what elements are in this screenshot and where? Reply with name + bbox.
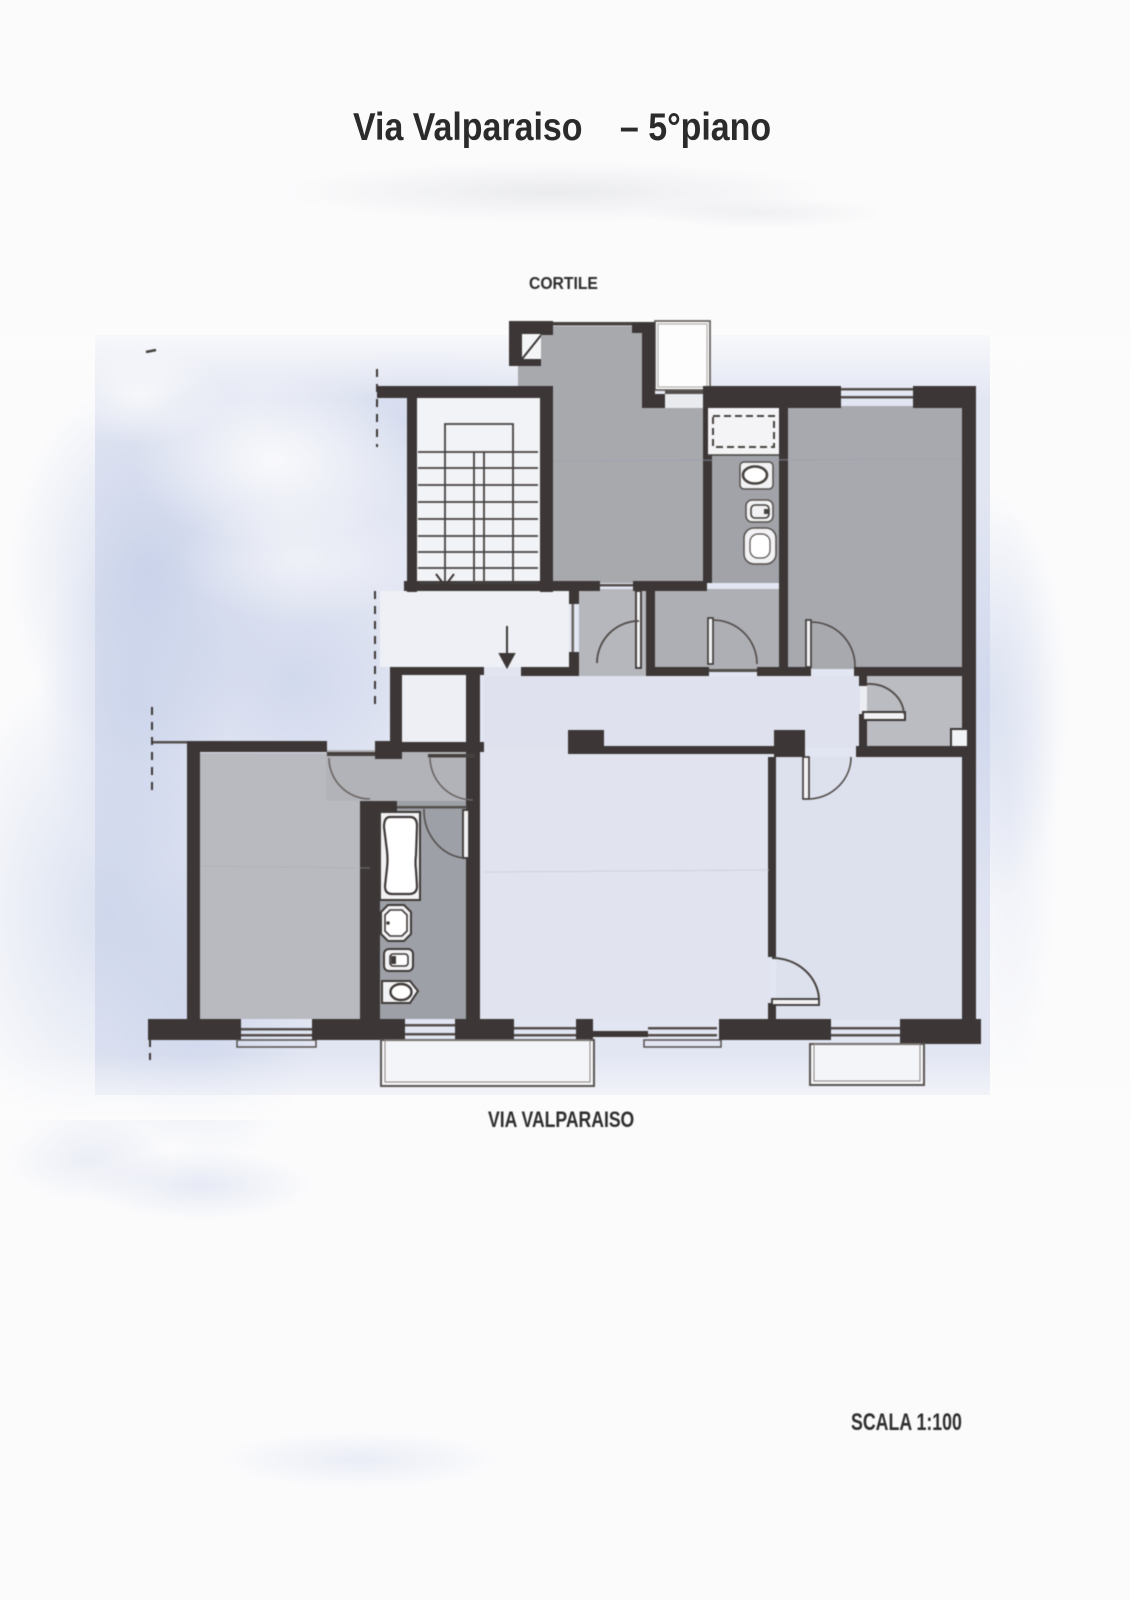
svg-text:VIA VALPARAISO: VIA VALPARAISO <box>488 1108 634 1132</box>
svg-text:SCALA 1:100: SCALA 1:100 <box>851 1410 962 1436</box>
svg-text:CORTILE: CORTILE <box>529 273 598 293</box>
